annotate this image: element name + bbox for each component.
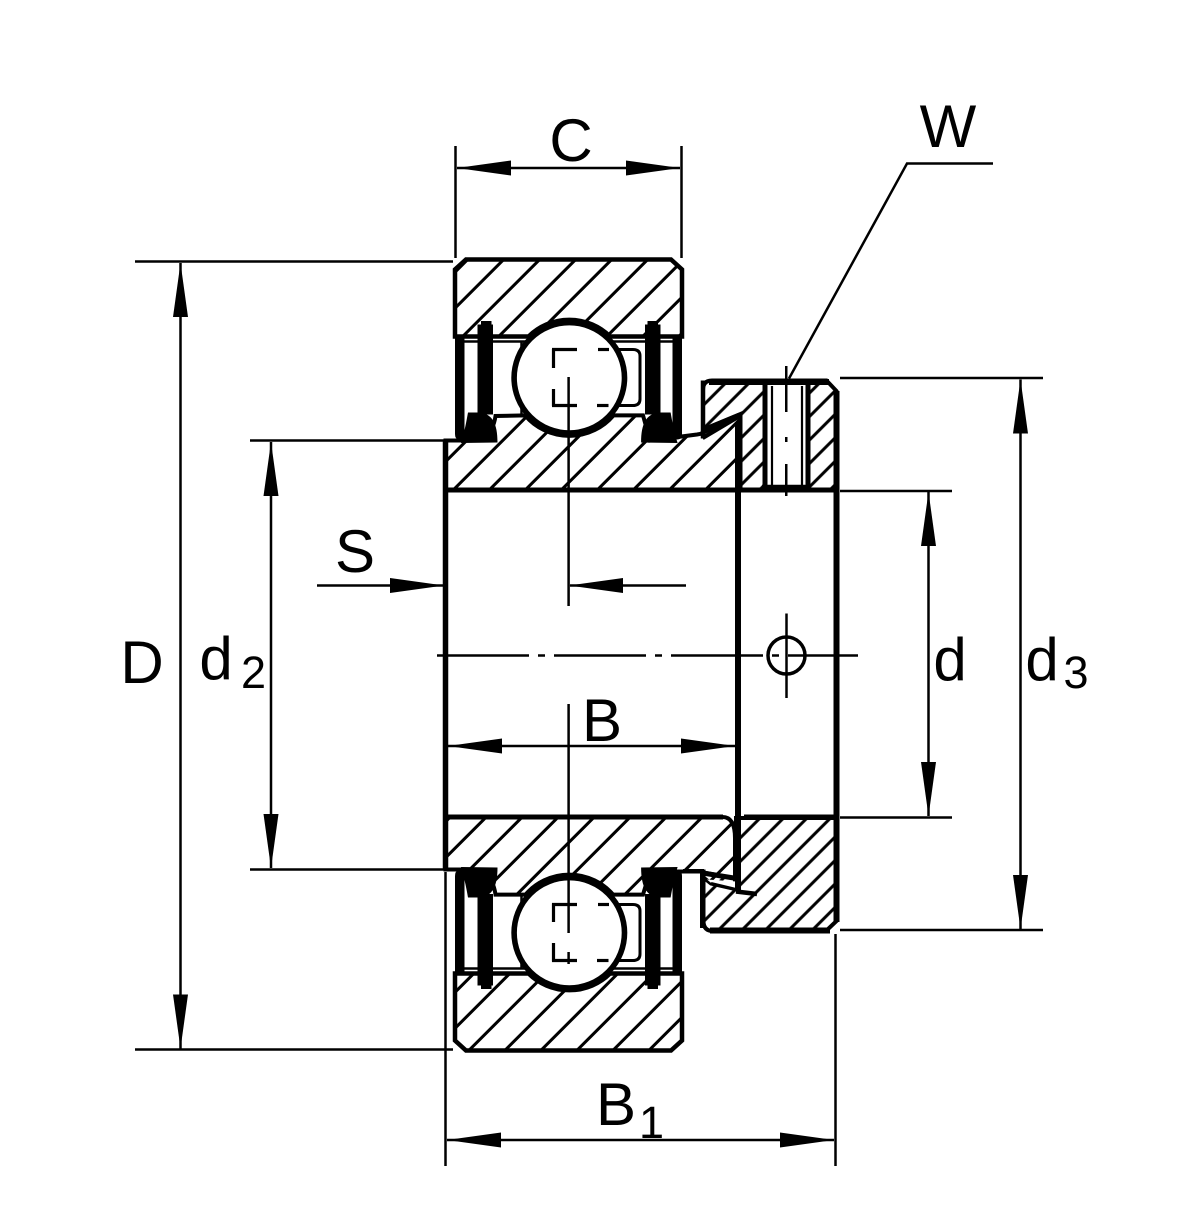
svg-text:1: 1: [639, 1097, 664, 1148]
svg-text:B: B: [582, 687, 622, 754]
svg-text:C: C: [549, 107, 592, 174]
svg-text:D: D: [120, 629, 163, 696]
svg-text:d: d: [933, 626, 966, 693]
svg-text:d: d: [1025, 626, 1058, 693]
svg-text:B: B: [596, 1071, 636, 1138]
svg-text:d: d: [199, 625, 232, 692]
svg-text:S: S: [335, 518, 375, 585]
svg-text:W: W: [920, 93, 977, 160]
svg-text:2: 2: [241, 647, 266, 698]
svg-text:3: 3: [1063, 647, 1088, 698]
